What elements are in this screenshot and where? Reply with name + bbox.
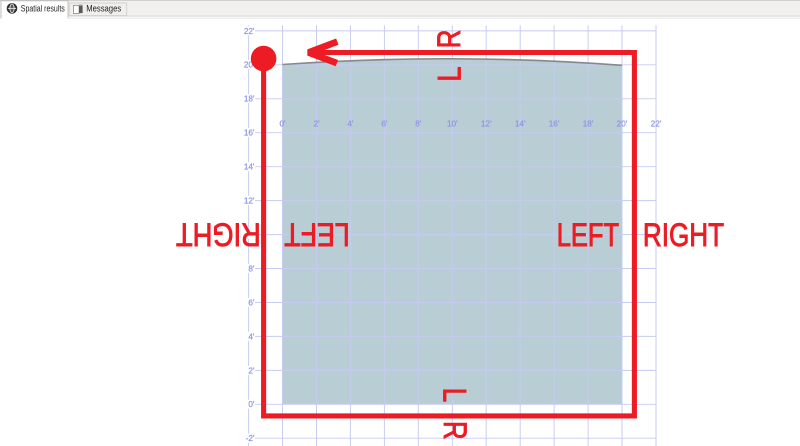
- svg-text:R: R: [437, 421, 473, 440]
- svg-text:16': 16': [549, 120, 560, 129]
- svg-text:LEFT: LEFT: [557, 217, 619, 253]
- svg-text:Messages: Messages: [86, 3, 121, 13]
- svg-text:RIGHT: RIGHT: [643, 217, 724, 253]
- svg-text:4': 4': [248, 332, 255, 341]
- svg-text:12': 12': [244, 197, 255, 206]
- svg-text:22': 22': [244, 27, 255, 36]
- svg-text:14': 14': [515, 120, 526, 129]
- svg-text:LEFT: LEFT: [284, 216, 350, 252]
- svg-text:R: R: [431, 30, 467, 49]
- svg-text:18': 18': [583, 120, 594, 129]
- svg-text:0': 0': [248, 400, 255, 409]
- svg-text:22': 22': [651, 120, 662, 129]
- svg-text:RIGHT: RIGHT: [176, 216, 261, 252]
- svg-text:L: L: [436, 388, 472, 403]
- svg-text:4': 4': [347, 120, 354, 129]
- svg-text:0': 0': [279, 120, 286, 129]
- svg-text:-2': -2': [246, 434, 255, 443]
- svg-text:20': 20': [617, 120, 628, 129]
- svg-text:2': 2': [313, 120, 320, 129]
- svg-text:Spatial results: Spatial results: [21, 3, 65, 13]
- svg-text:12': 12': [481, 120, 492, 129]
- svg-text:16': 16': [244, 129, 255, 138]
- svg-text:2': 2': [248, 366, 255, 375]
- svg-text:L: L: [431, 67, 467, 82]
- svg-text:6': 6': [248, 298, 255, 307]
- svg-text:8': 8': [415, 120, 422, 129]
- svg-text:6': 6': [381, 120, 388, 129]
- svg-text:14': 14': [244, 163, 255, 172]
- svg-text:18': 18': [244, 95, 255, 104]
- svg-text:8': 8': [248, 264, 255, 273]
- svg-text:10': 10': [447, 120, 458, 129]
